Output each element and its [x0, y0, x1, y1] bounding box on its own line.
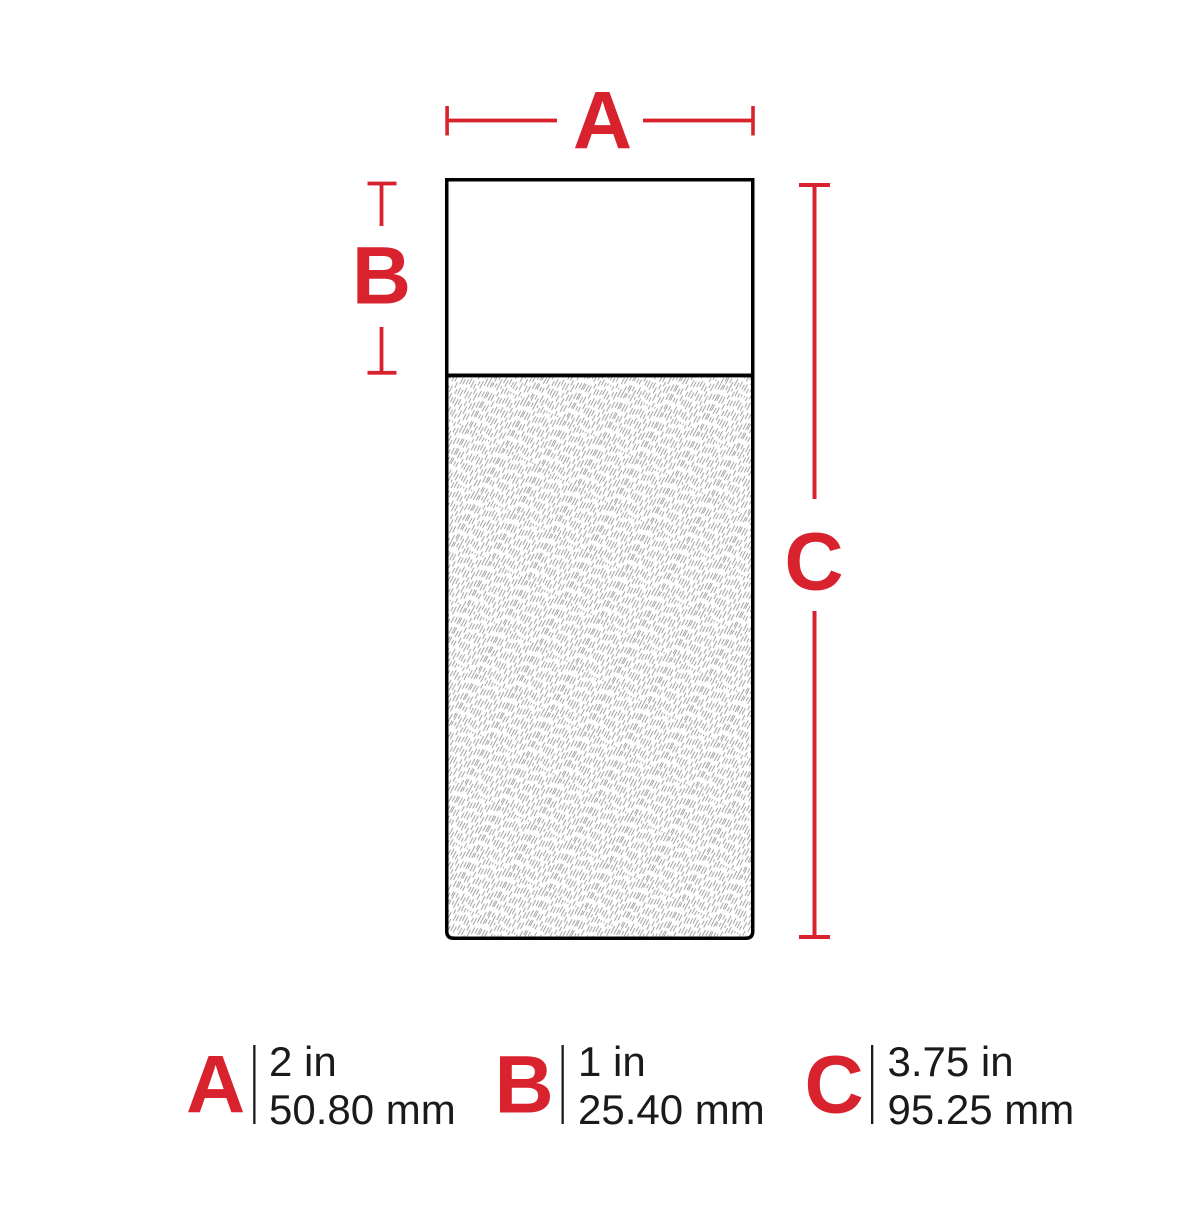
- svg-text:B: B: [352, 231, 411, 322]
- svg-text:50.80 mm: 50.80 mm: [269, 1086, 456, 1133]
- svg-text:3.75 in: 3.75 in: [888, 1038, 1014, 1085]
- svg-text:2 in: 2 in: [269, 1038, 337, 1085]
- svg-text:1 in: 1 in: [578, 1038, 646, 1085]
- svg-text:C: C: [784, 517, 843, 608]
- svg-text:A: A: [186, 1040, 245, 1131]
- svg-text:B: B: [495, 1040, 554, 1131]
- svg-text:A: A: [573, 76, 632, 167]
- svg-text:25.40 mm: 25.40 mm: [578, 1086, 765, 1133]
- svg-text:C: C: [805, 1040, 864, 1131]
- svg-text:95.25 mm: 95.25 mm: [888, 1086, 1075, 1133]
